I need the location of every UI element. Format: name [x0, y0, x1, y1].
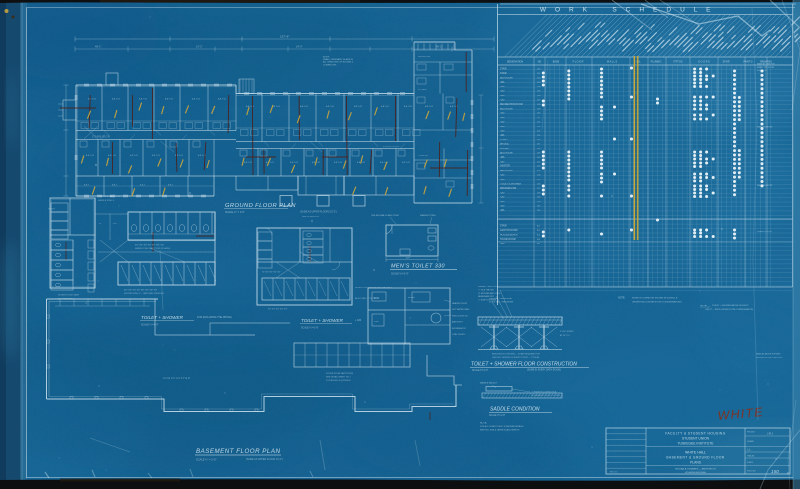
svg-text:SERVING RM: SERVING RM — [418, 56, 430, 58]
svg-text:SAME AS THIS FOR: SAME AS THIS FOR — [757, 63, 775, 66]
svg-text:REV. NO: REV. NO — [610, 472, 618, 474]
svg-text:A.B.7×11: A.B.7×11 — [266, 161, 275, 164]
svg-text:TOILET + SHOWER FLOOR CONSTRUC: TOILET + SHOWER FLOOR CONSTRUCTION — [471, 362, 577, 368]
svg-text:STAIR: STAIR — [500, 68, 507, 71]
svg-text:BOILER: BOILER — [408, 297, 416, 299]
svg-text:″0″ 3′0″ 3′0″ 3′0″ 3′0″: ″0″ 3′0″ 3′0″ 3′0″ 3′0″ — [262, 272, 281, 274]
svg-text:SCALE ¼″ = 1′-0″: SCALE ¼″ = 1′-0″ — [225, 211, 245, 214]
svg-text:MARBLE STALL PARTITIONS W/ GAT: MARBLE STALL PARTITIONS W/ GATES — [135, 247, 171, 250]
svg-text:SET AGAINST WOOD FLOORS: SET AGAINST WOOD FLOORS — [531, 394, 560, 397]
svg-text:SAME AS ABOVE: SAME AS ABOVE — [757, 184, 773, 187]
svg-text:A.B.T.: A.B.T. — [140, 184, 146, 187]
svg-text:W O R K S C H E D U L E: W O R K S C H E D U L E — [540, 7, 714, 14]
svg-text:BRIDGE: BRIDGE — [500, 144, 509, 146]
svg-text:PLUMB’G: PLUMB’G — [651, 61, 662, 64]
svg-text:3′0″ 3′0″ 3′0″ 3′0″ 3′0″: 3′0″ 3′0″ 3′0″ 3′0″ 3′0″ — [268, 309, 288, 311]
svg-text:DRESSING RM: DRESSING RM — [500, 188, 516, 190]
svg-text:SHOWER ROOM CONDITION: SHOWER ROOM CONDITION — [756, 357, 783, 359]
svg-text:CEMENT FLOOR: CEMENT FLOOR — [757, 231, 773, 233]
svg-text:DRAWN: DRAWN — [747, 440, 754, 443]
svg-text:JANITOR ROOM: JANITOR ROOM — [500, 229, 518, 232]
svg-text:SEE FULL SIZE & LARGE SCALE SH: SEE FULL SIZE & LARGE SCALE SHEETS — [480, 429, 520, 432]
svg-text:A.B.7×11: A.B.7×11 — [381, 105, 390, 108]
svg-text:A.B.7×11: A.B.7×11 — [88, 98, 97, 101]
svg-text:FOR (INCLUDING THE ABOVE): FOR (INCLUDING THE ABOVE) — [197, 316, 232, 319]
svg-text:10′0″: 10′0″ — [406, 258, 411, 260]
svg-text:46′-1″: 46′-1″ — [436, 46, 442, 49]
svg-text:TOILET + SHOWER ABOVE IS EXACT: TOILET + SHOWER ABOVE IS EXACT — [712, 304, 749, 307]
svg-text:UNEXCAVATED: UNEXCAVATED — [163, 376, 191, 380]
svg-text:+ 320: + 320 — [355, 319, 362, 322]
svg-text:A.B.7×11: A.B.7×11 — [112, 98, 121, 101]
svg-text:¾″ FINISH FLOORING TILE: ¾″ FINISH FLOORING TILE — [531, 391, 557, 394]
svg-text:AT 16″ O.C.: AT 16″ O.C. — [560, 334, 571, 337]
svg-text:150: 150 — [771, 469, 779, 474]
svg-text:J.R.J: J.R.J — [767, 432, 774, 436]
svg-text:THE FULL LENGTH OF EVERY TOILE: THE FULL LENGTH OF EVERY TOILET — TYPICA… — [492, 356, 540, 359]
svg-text:SADDLE CONDITION: SADDLE CONDITION — [490, 407, 540, 413]
svg-text:ATLANTA GEORGIA: ATLANTA GEORGIA — [685, 471, 706, 474]
svg-text:A.B.7×11: A.B.7×11 — [326, 105, 335, 108]
svg-text:SCALE 3″=1′-0″: SCALE 3″=1′-0″ — [489, 414, 505, 417]
svg-text:A.B.7×11: A.B.7×11 — [165, 98, 174, 101]
svg-text:(SAME AS UPPER FLOORS 10′-2″): (SAME AS UPPER FLOORS 10′-2″) — [300, 211, 337, 214]
svg-text:TRUNK ROOM: TRUNK ROOM — [500, 239, 516, 241]
svg-text:TOILET & SHOWER: TOILET & SHOWER — [500, 183, 521, 185]
svg-text:FOR ALL OTHER TOILET & SHOWER: FOR ALL OTHER TOILET & SHOWER DETAILS — [480, 425, 524, 428]
svg-text:LIKE IT — ENCLOSURE ROOM CONSI: LIKE IT — ENCLOSURE ROOM CONSIDERATION — [705, 308, 753, 311]
svg-text:BASEMENT FLOOR PLAN: BASEMENT FLOOR PLAN — [196, 448, 280, 455]
svg-text:FOLIO NO: FOLIO NO — [747, 471, 756, 473]
svg-text:BED ROOM: BED ROOM — [500, 108, 513, 110]
svg-text:-DO-: -DO- — [500, 122, 505, 124]
svg-text:-DO-: -DO- — [500, 210, 505, 212]
svg-text:DESIGNATION: DESIGNATION — [507, 61, 524, 64]
svg-text:-DO-: -DO- — [500, 197, 505, 199]
svg-text:SCALE ¼″=1′-0″: SCALE ¼″=1′-0″ — [141, 324, 159, 327]
svg-text:A.B.7×11: A.B.7×11 — [450, 105, 459, 108]
svg-text:PROJECT: PROJECT — [747, 432, 756, 434]
svg-text:BASE: BASE — [553, 61, 560, 64]
svg-text:SMALL ORDINARY GLASS IN: SMALL ORDINARY GLASS IN — [323, 58, 353, 61]
svg-text:NOTE:: NOTE: — [700, 305, 707, 307]
svg-text:A.B.7×11: A.B.7×11 — [139, 98, 148, 101]
svg-text:(SAME AS UPPER FLOOR 10′-2″): (SAME AS UPPER FLOOR 10′-2″) — [246, 458, 283, 461]
svg-text:UNDER ENCLOSURE ROOM CONSIDERA: UNDER ENCLOSURE ROOM CONSIDERATIONS — [632, 301, 682, 304]
svg-text:CEMENT THE FLOOR: CEMENT THE FLOOR — [478, 286, 499, 288]
svg-text:A.B.7×11: A.B.7×11 — [218, 98, 227, 101]
svg-text:CEILING WALLS AND TRIM: CEILING WALLS AND TRIM — [371, 214, 399, 217]
svg-text:STORE ROOM PARTITIONS: STORE ROOM PARTITIONS — [326, 372, 354, 375]
svg-text:WAINSCOTING: WAINSCOTING — [420, 214, 436, 217]
svg-text:INCIN.: INCIN. — [374, 298, 380, 300]
svg-text:COAL CHUTE: COAL CHUTE — [452, 333, 465, 336]
svg-text:A.B.7×11: A.B.7×11 — [354, 105, 363, 108]
svg-text:SEE NOTE: SEE NOTE — [757, 70, 767, 72]
svg-text:21′-3″: 21′-3″ — [196, 46, 202, 49]
svg-text:A.B.7×11: A.B.7×11 — [244, 161, 253, 164]
svg-text:PLANS: PLANS — [690, 461, 702, 465]
svg-text:TOILET + SHOWER: TOILET + SHOWER — [301, 318, 344, 323]
svg-text:-DO-: -DO- — [500, 206, 505, 208]
svg-text:-DO-: -DO- — [500, 86, 505, 88]
svg-text:A.B.7×11: A.B.7×11 — [380, 161, 389, 164]
svg-text:WHITE HALL: WHITE HALL — [685, 451, 706, 455]
svg-text:F L O O R: F L O O R — [573, 61, 584, 64]
svg-text:A.B.7×11: A.B.7×11 — [404, 105, 413, 108]
svg-text:TRACED: TRACED — [747, 455, 755, 458]
svg-text:SCALE: SCALE — [747, 461, 754, 464]
svg-text:-DO-: -DO- — [500, 130, 505, 132]
svg-text:L.L.: L.L. — [747, 448, 752, 452]
svg-text:LIVING RM: LIVING RM — [418, 155, 428, 157]
svg-text:FURRED WALL NOTE: FURRED WALL NOTE — [100, 195, 121, 198]
svg-text:-DO-: -DO- — [500, 95, 505, 97]
svg-text:BRIDGING NOT SHOWN — SOME REQU: BRIDGING NOT SHOWN — SOME REQUIRED FOR — [492, 354, 540, 356]
svg-text:STAIR: STAIR — [723, 61, 730, 64]
svg-text:HOUSEKEEPER: HOUSEKEEPER — [500, 234, 518, 236]
svg-text:SCALE ¼″=1′-0″: SCALE ¼″=1′-0″ — [301, 327, 319, 330]
svg-text:SAME AS ABOVE IN EVERY: SAME AS ABOVE IN EVERY — [756, 353, 781, 356]
svg-text:INCINERATOR: INCINERATOR — [452, 327, 466, 330]
svg-text:-DO-: -DO- — [500, 192, 505, 194]
svg-text:MARBLE SADDLE: MARBLE SADDLE — [480, 382, 497, 385]
svg-text:STAIR: STAIR — [500, 225, 507, 228]
svg-text:DRY: DRY — [113, 223, 118, 225]
svg-text:-DO-: -DO- — [500, 157, 505, 159]
svg-text:FOR ADDED EQUIPMENT: FOR ADDED EQUIPMENT — [326, 379, 352, 382]
svg-text:MEN’S TOILET 330: MEN’S TOILET 330 — [391, 264, 445, 270]
svg-text:-DO-: -DO- — [500, 135, 505, 137]
svg-text:ALL WINDOWS OF ROOMS &: ALL WINDOWS OF ROOMS & — [323, 61, 354, 64]
svg-text:A.B.7×11: A.B.7×11 — [246, 105, 255, 108]
svg-text:⅜″ MORTAR BED OVER: ⅜″ MORTAR BED OVER — [478, 292, 501, 295]
svg-text:A.B.7×11: A.B.7×11 — [334, 161, 343, 164]
svg-text:-DO-: -DO- — [500, 117, 505, 119]
svg-text:WORK IN CORRIDOR SHOWN IN SCHE: WORK IN CORRIDOR SHOWN IN SCHED’LE — [632, 298, 678, 300]
svg-text:GROUND FLOOR PLAN: GROUND FLOOR PLAN — [225, 203, 296, 209]
svg-text:MEMBRANE W.P.: MEMBRANE W.P. — [478, 295, 495, 298]
svg-text:W A L L S: W A L L S — [607, 61, 618, 64]
svg-text:-DO-: -DO- — [500, 82, 505, 84]
svg-text:FUEL ROOM 312: FUEL ROOM 312 — [452, 315, 469, 317]
svg-text:-DO-: -DO- — [500, 99, 505, 101]
svg-text:STUDENT UNION: STUDENT UNION — [682, 437, 710, 441]
svg-text:WILLIAM A. EDWARDS — ARCHITECT: WILLIAM A. EDWARDS — ARCHITECTS — [675, 468, 716, 471]
svg-text:3′0″ 3′0″ 3′0″ 3′0″ 3′0″ 3′0″: 3′0″ 3′0″ 3′0″ 3′0″ 3′0″ 3′0″ 3′0″ — [135, 245, 164, 247]
svg-text:¾″ SUB FLOORING: ¾″ SUB FLOORING — [478, 299, 496, 302]
svg-text:FITT’GS: FITT’GS — [673, 61, 682, 64]
svg-text:BED ROOM: BED ROOM — [500, 170, 513, 172]
svg-text:(SAME IN EVERY BATH ROOM): (SAME IN EVERY BATH ROOM) — [527, 369, 561, 372]
svg-text:24′-0″: 24′-0″ — [296, 46, 302, 49]
svg-text:-DO-: -DO- — [500, 243, 505, 245]
svg-text:-DO-: -DO- — [500, 179, 505, 181]
svg-text:SCALE ½″=1′-0″: SCALE ½″=1′-0″ — [391, 272, 409, 276]
svg-text:-DO-: -DO- — [500, 91, 505, 93]
svg-text:A.B.7×11: A.B.7×11 — [402, 161, 411, 164]
svg-text:A.B.T.: A.B.T. — [112, 184, 118, 187]
svg-text:SEE SCHEDULE: SEE SCHEDULE — [302, 216, 319, 218]
svg-text:D O O R S: D O O R S — [698, 61, 710, 64]
svg-text:-DO-: -DO- — [500, 175, 505, 177]
svg-text:RECREATION ROOM: RECREATION ROOM — [500, 103, 523, 106]
svg-text:A.B.7×11: A.B.7×11 — [130, 154, 139, 157]
svg-text:NOTE:: NOTE: — [618, 297, 626, 300]
svg-text:BED ROOM: BED ROOM — [500, 153, 513, 155]
svg-text:TUSKEGEE INSTITUTE: TUSKEGEE INSTITUTE — [678, 442, 715, 446]
svg-text:SHOWER STALLS — LEAD PANS UNDE: SHOWER STALLS — LEAD PANS UNDER ALL — [124, 292, 164, 295]
svg-text:SEE DETAIL SHEET NO 7: SEE DETAIL SHEET NO 7 — [326, 376, 352, 379]
svg-text:NO: NO — [538, 61, 542, 64]
svg-text:SCALE ¼″ = 1′-0″: SCALE ¼″ = 1′-0″ — [196, 458, 216, 462]
svg-text:A.B.7×11: A.B.7×11 — [425, 105, 434, 108]
svg-text:SCALE 3″=1′-0″: SCALE 3″=1′-0″ — [472, 369, 488, 372]
svg-text:TOILET + SHOWER: TOILET + SHOWER — [141, 315, 184, 320]
svg-text:137′-6″: 137′-6″ — [280, 35, 289, 39]
svg-text:BED ROOM: BED ROOM — [500, 77, 513, 79]
svg-text:-DO-: -DO- — [500, 113, 505, 115]
svg-text:SAME AS ABOVE: SAME AS ABOVE — [757, 126, 773, 129]
svg-text:-DO-: -DO- — [500, 161, 505, 163]
svg-text:A.B.7×11: A.B.7×11 — [290, 161, 299, 164]
svg-text:-DO-: -DO- — [500, 126, 505, 128]
svg-text:A.B.T.: A.B.T. — [168, 184, 174, 187]
svg-text:EVERY TYP ROOM: EVERY TYP ROOM — [757, 67, 774, 69]
svg-text:STUDY: STUDY — [500, 139, 508, 141]
svg-text:2″×10″ JOISTS: 2″×10″ JOISTS — [560, 330, 574, 333]
svg-text:ASH HOIST: ASH HOIST — [452, 321, 464, 324]
svg-text:A.B.7×11: A.B.7×11 — [86, 154, 95, 157]
svg-text:A.B.7×11: A.B.7×11 — [198, 154, 207, 157]
svg-text:NOTE:: NOTE: — [480, 423, 487, 425]
svg-text:WOMEN’S SIDE SAME: WOMEN’S SIDE SAME — [58, 294, 80, 297]
svg-text:BASEMENT & GROUND FLOOR: BASEMENT & GROUND FLOOR — [666, 456, 724, 460]
svg-text:CLOSET: CLOSET — [500, 148, 510, 150]
svg-text:A.B.7×11: A.B.7×11 — [300, 105, 309, 108]
svg-text:FACULTY & STUDENT HOUSING: FACULTY & STUDENT HOUSING — [665, 432, 725, 436]
svg-text:46′-1″: 46′-1″ — [95, 46, 101, 49]
svg-text:CORRIDOR: CORRIDOR — [383, 146, 400, 148]
svg-text:3′0″ 3′0″ 3′0″ 3′0″ 3′0″ 3′0″: 3′0″ 3′0″ 3′0″ 3′0″ 3′0″ 3′0″ 3′0″ 3′0″ — [124, 290, 157, 292]
svg-text:CORRIDORS: CORRIDORS — [323, 64, 337, 66]
svg-text:HEATER ROOM: HEATER ROOM — [452, 302, 467, 305]
svg-text:HOT WATER TANK: HOT WATER TANK — [452, 308, 470, 311]
svg-text:KITCHEN: KITCHEN — [418, 89, 427, 91]
svg-text:A.B.7×11: A.B.7×11 — [192, 98, 201, 101]
svg-text:MARBLE STALLS: MARBLE STALLS — [98, 199, 115, 202]
svg-text:-DO-: -DO- — [500, 201, 505, 203]
svg-text:A.B.T.: A.B.T. — [84, 184, 90, 187]
svg-text:A.B.7×11: A.B.7×11 — [152, 154, 161, 157]
svg-text:STAIR: STAIR — [500, 72, 507, 75]
svg-text:TOILET: TOILET — [48, 209, 56, 211]
svg-text:FUEL: FUEL — [374, 321, 379, 323]
svg-text:JANITOR: JANITOR — [500, 165, 510, 168]
